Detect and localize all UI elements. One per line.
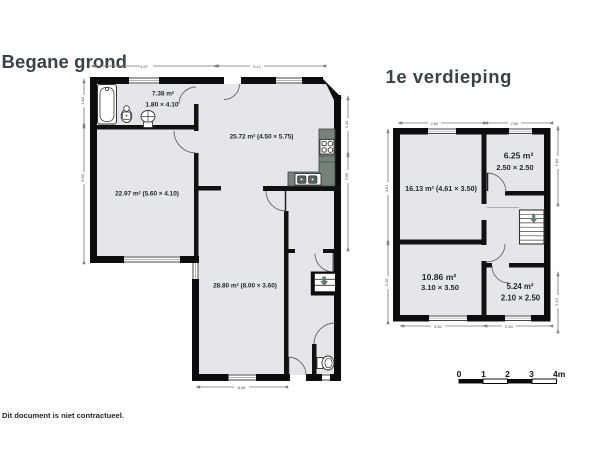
svg-text:2.80: 2.80	[554, 158, 559, 167]
svg-text:22.97 m² (5.60 × 4.10): 22.97 m² (5.60 × 4.10)	[115, 191, 179, 198]
svg-text:16.13 m² (4.61 × 3.50): 16.13 m² (4.61 × 3.50)	[405, 184, 477, 193]
svg-text:5.60: 5.60	[80, 173, 85, 182]
svg-text:4.97: 4.97	[140, 64, 149, 69]
svg-text:3.10 × 3.50: 3.10 × 3.50	[421, 283, 459, 292]
svg-text:25.72 m² (4.50 × 5.75): 25.72 m² (4.50 × 5.75)	[230, 134, 294, 141]
svg-text:1.80 × 4.10: 1.80 × 4.10	[145, 102, 179, 109]
svg-text:5.24 m²: 5.24 m²	[507, 282, 534, 291]
svg-text:2.43: 2.43	[344, 120, 349, 129]
svg-text:8.06: 8.06	[238, 385, 247, 390]
svg-text:4.61: 4.61	[384, 184, 389, 193]
svg-text:9.12: 9.12	[253, 64, 262, 69]
svg-text:2.10: 2.10	[554, 297, 559, 306]
svg-text:0: 0	[457, 369, 462, 379]
svg-text:1e verdieping: 1e verdieping	[386, 66, 512, 87]
svg-text:2.10 × 2.50: 2.10 × 2.50	[501, 294, 541, 303]
svg-text:Begane grond: Begane grond	[2, 51, 128, 72]
svg-text:6.25 m²: 6.25 m²	[504, 151, 534, 161]
svg-text:2.50: 2.50	[511, 121, 520, 126]
svg-text:2.50: 2.50	[505, 324, 514, 329]
svg-text:3.05: 3.05	[344, 172, 349, 181]
svg-text:3.50: 3.50	[434, 324, 443, 329]
svg-text:1.80: 1.80	[80, 96, 85, 105]
svg-text:3.10: 3.10	[384, 278, 389, 287]
svg-text:1: 1	[481, 369, 486, 379]
svg-text:3: 3	[529, 369, 534, 379]
svg-text:2.60: 2.60	[431, 121, 440, 126]
svg-text:10.86 m²: 10.86 m²	[422, 272, 457, 282]
svg-text:28.80 m² (8.00 × 3.60): 28.80 m² (8.00 × 3.60)	[213, 283, 277, 290]
svg-text:7.38 m²: 7.38 m²	[152, 91, 174, 98]
svg-text:2.50 × 2.50: 2.50 × 2.50	[496, 163, 533, 172]
svg-text:2: 2	[505, 369, 510, 379]
svg-text:Dit document is niet contractu: Dit document is niet contractueel.	[2, 411, 124, 420]
svg-text:4m: 4m	[553, 369, 566, 379]
